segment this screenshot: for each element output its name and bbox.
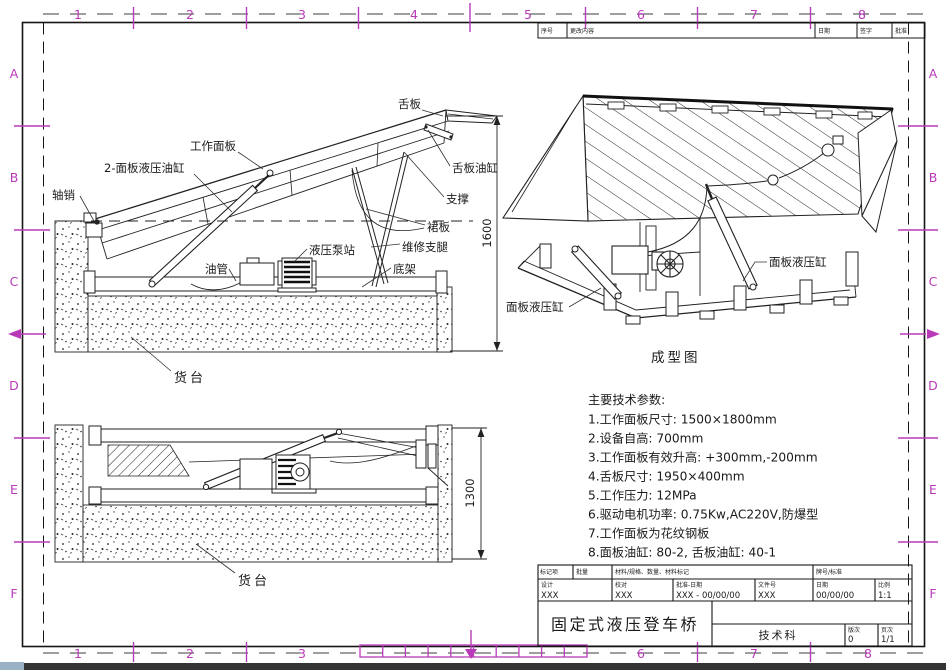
cad-drawing-page: { "frame": { "top_numbers": ["1","2","3"…	[0, 0, 946, 670]
tech-param-item: 1.工作面板尺寸: 1500×1800mm	[588, 413, 777, 427]
zone-letter: A	[929, 66, 938, 81]
dimension-1600	[445, 116, 503, 351]
tb-field-label: 比例	[878, 581, 890, 589]
bottom-strip	[0, 662, 946, 670]
label-panel-cylinders: 2-面板液压油缸	[104, 161, 185, 175]
zone-letter: B	[929, 170, 938, 185]
label-panel-cylinder-left: 面板液压缸	[506, 300, 564, 314]
hinge-pin	[84, 213, 102, 237]
zone-letter: F	[929, 586, 936, 601]
tb-field-label: 文件号	[758, 581, 776, 589]
view-side-raised: 1600 轴销 工作面板 2-面板液压油缸 舌板 舌板油缸 支撑 裙板 维修支腿…	[52, 97, 503, 386]
zone-letter: E	[10, 482, 18, 497]
tb-sheet-label: 页次	[881, 626, 893, 634]
tb-field-value: XXX	[615, 591, 633, 601]
tb-sheet-value: 1/1	[881, 635, 895, 645]
revision-col-approve: 批准	[895, 27, 907, 35]
zone-letter: E	[929, 482, 937, 497]
zone-number: 7	[750, 7, 758, 22]
view-side-lowered: 1300 货台	[55, 425, 487, 589]
tech-param-item: 3.工作面板有效升高: +300mm,-200mm	[588, 450, 818, 465]
zone-number: 2	[186, 646, 194, 661]
zone-number: 4	[410, 7, 418, 22]
label-maintenance-leg: 维修支腿	[402, 240, 448, 254]
zone-number: 7	[750, 646, 758, 661]
zone-letter: C	[10, 274, 19, 289]
zone-number: 1	[74, 646, 82, 661]
tb-version-label: 版次	[848, 626, 860, 634]
tech-param-item: 2.设备自高: 700mm	[588, 431, 703, 446]
tb-field-label: 校对	[615, 581, 627, 589]
tb-department: 技术科	[759, 628, 798, 642]
tb-version-value: 0	[848, 635, 853, 645]
label-support: 支撑	[446, 192, 469, 206]
zone-number: 3	[298, 646, 306, 661]
zone-letter: C	[929, 274, 938, 289]
tech-param-item: 5.工作压力: 12MPa	[588, 489, 697, 503]
tb-header-mark: 标记项	[540, 568, 558, 576]
zone-number: 2	[186, 7, 194, 22]
dimension-1600-text: 1600	[480, 218, 494, 247]
tb-field-label: 日期	[816, 581, 828, 589]
label-panel-cylinder-right: 面板液压缸	[769, 255, 827, 269]
tech-params-title: 主要技术参数:	[588, 392, 665, 407]
title-block: 标记项 批量 材料/规格、数量、材料标记 牌号/标准 设计 XXX 校对 XXX…	[538, 565, 912, 646]
drawing-title: 固定式液压登车桥	[551, 615, 699, 634]
tb-field-value: XXX - 00/00/00	[676, 591, 740, 601]
zone-number: 5	[524, 7, 532, 22]
revision-col-content: 更改内容	[570, 27, 594, 35]
pump-unit-stowed	[240, 455, 316, 493]
zone-letter: A	[10, 66, 19, 81]
view-isometric: 面板液压缸 面板液压缸 成型图	[503, 96, 897, 366]
zone-letter: B	[10, 170, 19, 185]
label-lip-cylinder: 舌板油缸	[452, 161, 498, 175]
label-oil-pipe: 油管	[205, 262, 228, 276]
tb-field-label: 批准-日期	[676, 581, 702, 589]
tb-header-material: 材料/规格、数量、材料标记	[615, 568, 689, 576]
label-dock-upper: 货台	[174, 370, 206, 386]
label-axle-pin: 轴销	[52, 188, 75, 202]
zone-letter: D	[928, 378, 938, 393]
revision-strip: 序号 更改内容 日期 签字 批准	[538, 23, 925, 38]
revision-col-index: 序号	[541, 27, 553, 35]
iso-caption: 成型图	[651, 350, 701, 366]
zone-letter: D	[9, 378, 19, 393]
engineering-drawing-canvas: 1 2 3 4 5 6 7 8 1 2 3 6 7 8 A B C D E F …	[0, 0, 946, 670]
tech-param-item: 4.舌板尺寸: 1950×400mm	[588, 470, 745, 484]
tech-param-item: 8.面板油缸: 80-2, 舌板油缸: 40-1	[588, 545, 776, 560]
label-base-frame: 底架	[393, 262, 416, 276]
dimension-1300-text: 1300	[463, 478, 477, 507]
tb-field-value: 1:1	[878, 591, 892, 601]
zone-number: 6	[637, 646, 645, 661]
tb-header-grade: 牌号/标准	[816, 568, 842, 576]
tb-field-value: XXX	[758, 591, 776, 601]
tb-field-label: 设计	[541, 581, 553, 589]
tb-field-value: XXX	[541, 591, 559, 601]
zone-number: 6	[637, 7, 645, 22]
zone-number: 1	[74, 7, 82, 22]
label-dock-lower: 货台	[238, 573, 270, 589]
revision-col-date: 日期	[818, 27, 830, 35]
tb-field-value: 00/00/00	[816, 591, 854, 601]
iso-pump-unit	[612, 246, 683, 277]
tb-header-qty: 批量	[576, 568, 588, 576]
zone-number: 3	[298, 7, 306, 22]
label-work-panel: 工作面板	[190, 139, 236, 153]
label-lip: 舌板	[398, 97, 421, 111]
zone-number: 8	[858, 7, 866, 22]
zone-letter: F	[10, 586, 17, 601]
revision-col-sign: 签字	[860, 27, 872, 35]
zone-number: 8	[864, 646, 872, 661]
tech-params-block: 主要技术参数: 1.工作面板尺寸: 1500×1800mm 2.设备自高: 70…	[588, 392, 818, 560]
tech-param-item: 7.工作面板为花纹钢板	[588, 526, 709, 541]
tech-param-item: 6.驱动电机功率: 0.75Kw,AC220V,防爆型	[588, 507, 818, 522]
label-pump-station: 液压泵站	[309, 243, 355, 257]
label-skirt: 裙板	[427, 220, 450, 234]
